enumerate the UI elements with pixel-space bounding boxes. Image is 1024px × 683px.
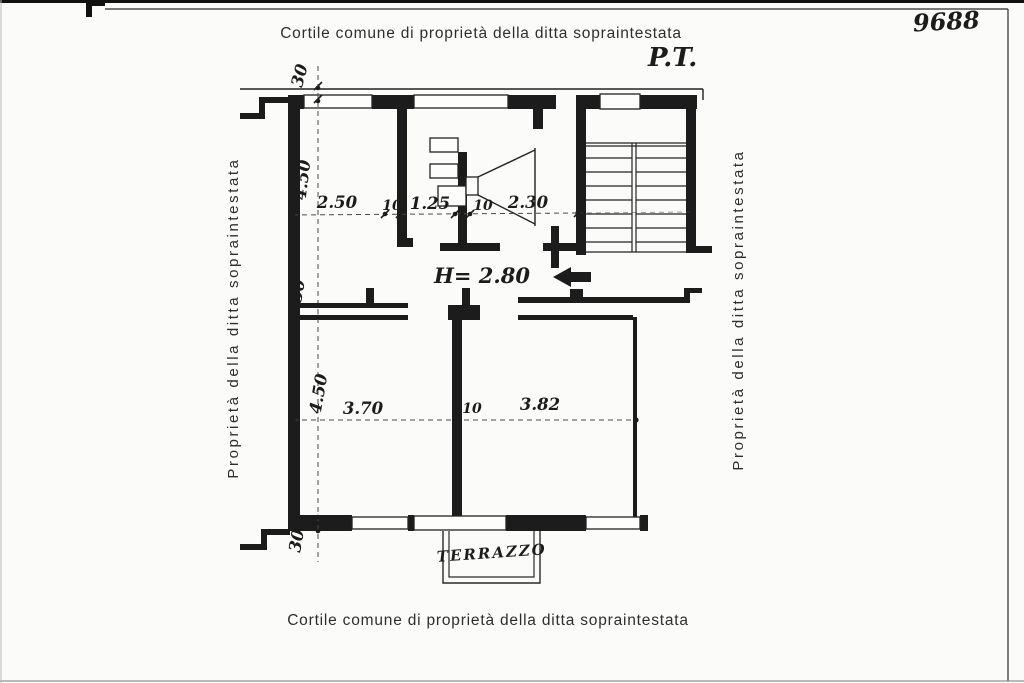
top-wall-pier	[372, 95, 414, 109]
terrace-door	[414, 516, 506, 530]
corridor-wall	[440, 243, 500, 251]
frame-notch	[86, 0, 105, 17]
floor-label: P.T.	[647, 43, 697, 73]
door-jamb	[448, 305, 480, 320]
bottom-wall	[506, 515, 586, 531]
stairwell-right-wall	[686, 99, 696, 251]
scan-top-edge	[0, 0, 1024, 3]
dim-top-4: 10	[473, 198, 493, 214]
window	[304, 95, 372, 108]
right-side-caption: Proprietà della ditta sopraintestata	[730, 149, 747, 470]
window	[352, 517, 408, 529]
bathtub-fixture	[466, 148, 535, 226]
sheet-number: 9688	[912, 5, 981, 37]
wall-step	[684, 288, 702, 293]
dim-wall-bottom: 30	[285, 527, 308, 553]
sink-fixture	[430, 138, 458, 152]
dim-wall-top: 30	[287, 62, 311, 90]
right-room-wall	[633, 317, 637, 517]
door-jamb	[366, 288, 374, 303]
scanned-floor-plan-page: Cortile comune di proprietà della ditta …	[0, 0, 1024, 683]
wall-notch	[570, 289, 583, 297]
wall-stub	[533, 109, 543, 129]
door-jamb	[462, 288, 470, 305]
terrace: TERRAZZO	[436, 531, 547, 583]
floor-plan-drawing: Cortile comune di proprietà della ditta …	[0, 0, 1024, 683]
bottom-wall	[408, 515, 414, 531]
corridor-wall	[518, 297, 690, 303]
top-wall-pier	[508, 95, 556, 109]
dim-lower-room-depth: 4.50	[306, 372, 332, 415]
bidet-fixture	[430, 164, 458, 178]
left-arrow-icon	[553, 267, 591, 287]
corridor-wall	[543, 243, 577, 251]
partition-wall	[397, 109, 407, 245]
neighbour-wall-bottom-left	[240, 532, 290, 547]
room-wall	[518, 315, 633, 320]
neighbour-wall-top-left	[240, 100, 289, 116]
stairwell-left-wall	[576, 99, 586, 255]
bottom-wall	[640, 515, 648, 531]
partition-wall-foot	[397, 238, 413, 247]
dim-top-1: 2.50	[316, 193, 358, 212]
dim-top-3: 1.25	[410, 194, 450, 213]
bottom-caption: Cortile comune di proprietà della ditta …	[287, 612, 689, 629]
dim-bottom-3: 3.82	[520, 395, 560, 414]
dimension-lines	[289, 66, 690, 562]
dim-top-2: 10	[382, 198, 402, 214]
entrance-door	[600, 94, 640, 109]
door-jamb	[551, 226, 559, 268]
dim-upper-room-depth: 4.50	[291, 158, 315, 201]
left-side-caption: Proprietà della ditta sopraintestata	[225, 157, 242, 478]
walls	[240, 89, 703, 547]
dim-bottom-1: 3.70	[343, 399, 384, 418]
stairwell	[576, 99, 712, 255]
dim-wall-mid: 30	[286, 277, 309, 303]
window	[586, 517, 640, 529]
terrace-label: TERRAZZO	[436, 540, 547, 566]
dim-bottom-2: 10	[462, 401, 482, 417]
upper-dimension-line-ext	[578, 212, 690, 213]
dim-top-5: 2.30	[507, 193, 549, 212]
ceiling-height-note: H= 2.80	[433, 263, 530, 288]
window	[414, 95, 508, 108]
stairwell-stub	[686, 246, 712, 253]
top-caption: Cortile comune di proprietà della ditta …	[280, 25, 682, 42]
